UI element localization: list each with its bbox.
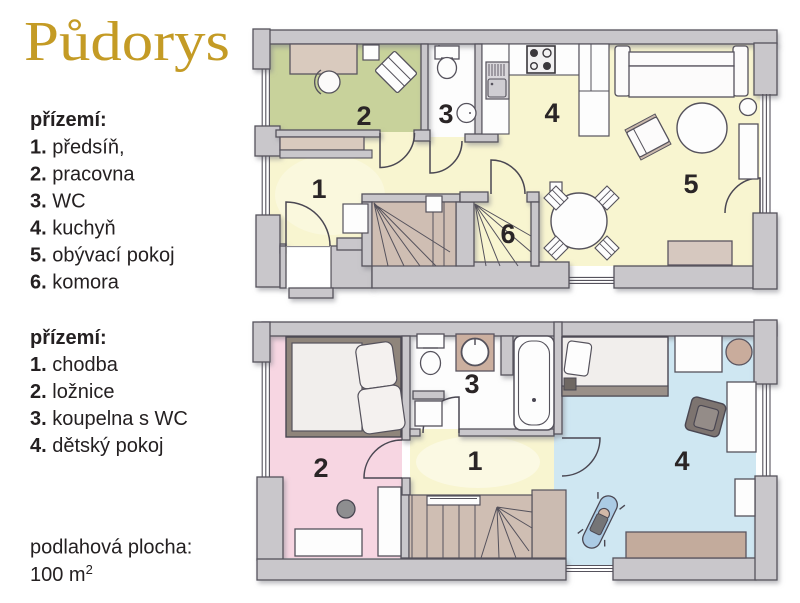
svg-text:2: 2: [313, 453, 328, 483]
svg-text:4: 4: [674, 446, 689, 476]
svg-text:6: 6: [500, 219, 515, 249]
svg-text:100 m2: 100 m2: [30, 562, 93, 586]
svg-text:přízemí:: přízemí:: [30, 327, 107, 349]
svg-text:5. obývací pokoj: 5. obývací pokoj: [30, 245, 175, 267]
svg-text:3. WC: 3. WC: [30, 191, 86, 213]
svg-text:2: 2: [356, 101, 371, 131]
svg-text:4. kuchyň: 4. kuchyň: [30, 218, 116, 240]
svg-text:Půdorys: Půdorys: [24, 11, 230, 73]
svg-text:3: 3: [438, 99, 453, 129]
svg-text:2. ložnice: 2. ložnice: [30, 381, 115, 403]
svg-text:6. komora: 6. komora: [30, 272, 120, 294]
svg-text:1. chodba: 1. chodba: [30, 354, 119, 376]
svg-text:1: 1: [311, 174, 326, 204]
svg-text:3. koupelna s WC: 3. koupelna s WC: [30, 408, 188, 430]
svg-text:4. dětský pokoj: 4. dětský pokoj: [30, 435, 163, 457]
svg-text:1: 1: [467, 446, 482, 476]
svg-text:3: 3: [464, 369, 479, 399]
svg-text:přízemí:: přízemí:: [30, 109, 107, 131]
svg-text:1. předsíň,: 1. předsíň,: [30, 137, 125, 159]
svg-text:5: 5: [683, 169, 698, 199]
svg-text:podlahová plocha:: podlahová plocha:: [30, 537, 192, 559]
svg-text:4: 4: [544, 98, 559, 128]
svg-text:2. pracovna: 2. pracovna: [30, 164, 135, 186]
